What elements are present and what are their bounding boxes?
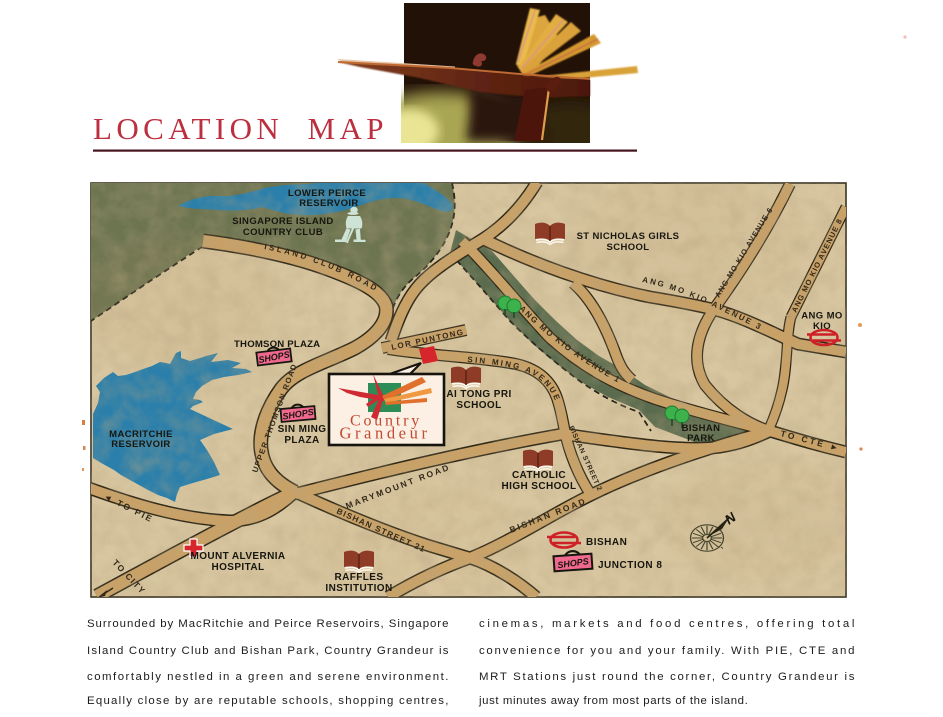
svg-text:RAFFLES: RAFFLES [335, 572, 384, 583]
svg-text:SCHOOL: SCHOOL [456, 400, 501, 411]
svg-text:RESERVOIR: RESERVOIR [299, 198, 358, 209]
svg-text:ST NICHOLAS GIRLS: ST NICHOLAS GIRLS [577, 231, 680, 242]
svg-text:comfortably nestled in a g: comfortably nestled in a green and seren… [87, 671, 449, 683]
svg-text:HIGH SCHOOL: HIGH SCHOOL [502, 481, 577, 492]
svg-text:cinemas, markets and food: cinemas, markets and food centres, offer… [479, 618, 855, 630]
svg-text:ANG MO: ANG MO [801, 311, 842, 322]
svg-text:MRT Stations just round the co: MRT Stations just round the corner, Coun… [479, 671, 855, 683]
svg-text:SIN MING: SIN MING [278, 424, 327, 435]
svg-text:convenience for you and your f: convenience for you and your family. Wit… [479, 645, 855, 657]
svg-text:LOCATION MAP: LOCATION MAP [93, 111, 388, 146]
svg-text:Island Country Club and Bishan: Island Country Club and Bishan Park, Cou… [87, 645, 449, 657]
svg-text:CATHOLIC: CATHOLIC [512, 470, 566, 481]
svg-text:MOUNT ALVERNIA: MOUNT ALVERNIA [190, 551, 285, 562]
svg-text:HOSPITAL: HOSPITAL [211, 562, 264, 573]
svg-text:PLAZA: PLAZA [284, 435, 319, 446]
svg-text:INSTITUTION: INSTITUTION [325, 583, 392, 594]
svg-text:SCHOOL: SCHOOL [606, 242, 649, 253]
svg-text:AI TONG PRI: AI TONG PRI [446, 389, 511, 400]
svg-text:JUNCTION 8: JUNCTION 8 [598, 560, 662, 571]
svg-text:SINGAPORE ISLAND: SINGAPORE ISLAND [232, 216, 333, 227]
svg-text:COUNTRY CLUB: COUNTRY CLUB [243, 227, 323, 238]
svg-text:PARK: PARK [687, 433, 715, 444]
svg-text:Grandeur: Grandeur [339, 424, 430, 443]
svg-text:just minutes away from most pa: just minutes away from most parts of the… [478, 695, 748, 707]
svg-text:Surrounded by MacRitchie and P: Surrounded by MacRitchie and Peirce Rese… [87, 618, 449, 630]
svg-text:RESERVOIR: RESERVOIR [111, 439, 170, 450]
svg-text:Equally close by are reput: Equally close by are reputable schools, … [87, 695, 449, 707]
svg-text:BISHAN: BISHAN [586, 537, 627, 548]
